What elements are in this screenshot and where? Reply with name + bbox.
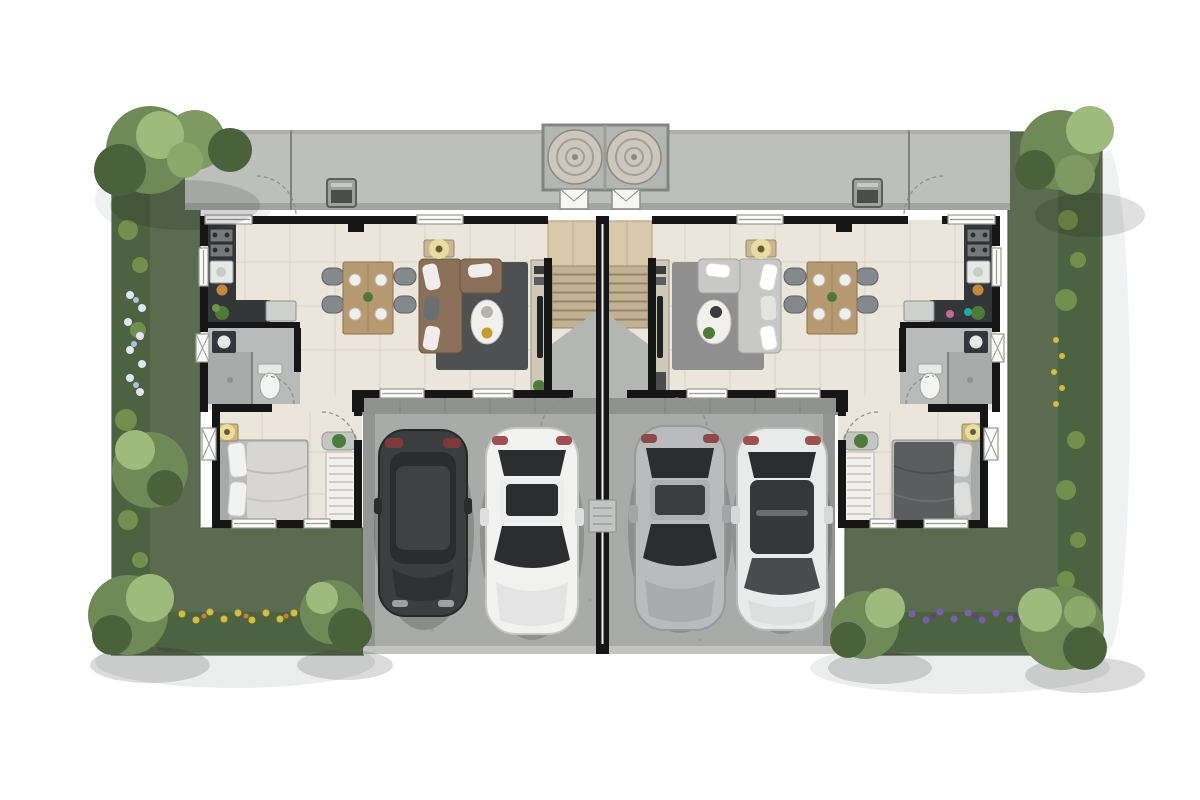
- window: [948, 215, 995, 224]
- bedroom-plant-left: [332, 434, 346, 448]
- window: [417, 215, 463, 224]
- water-tank-niche: [543, 125, 668, 190]
- staircase-left: [544, 221, 598, 398]
- dining-chair: [394, 268, 416, 285]
- dining-chair: [784, 296, 806, 313]
- water-tank-left: [548, 130, 602, 184]
- table-plant-left: [363, 292, 373, 302]
- fridge-left: [266, 301, 296, 321]
- dining-chair: [322, 296, 344, 313]
- window: [992, 248, 1001, 286]
- window: [304, 519, 330, 528]
- fruit-bowl-right: [973, 285, 984, 296]
- coffee-table-right: [697, 300, 731, 344]
- table-plant-right: [827, 292, 837, 302]
- wardrobe-right: [844, 432, 878, 522]
- window: [473, 389, 513, 398]
- bed-left: [216, 440, 308, 522]
- fruit-bowl-left: [217, 285, 228, 296]
- rear-step-mat-right: [612, 189, 640, 209]
- window: [380, 389, 424, 398]
- dining-chair: [856, 268, 878, 285]
- floor-plan-canvas: [0, 0, 1200, 800]
- window: [737, 215, 783, 224]
- rear-step-mat-left: [560, 189, 588, 209]
- window: [202, 428, 216, 460]
- bathroom-right: [899, 328, 992, 404]
- window: [199, 248, 208, 286]
- side-lamp-left: [424, 239, 454, 259]
- water-tank-right: [607, 130, 661, 184]
- car-sedan-white: [480, 428, 584, 640]
- wardrobe-left: [322, 432, 356, 522]
- glass-canopy: [750, 480, 814, 554]
- window: [687, 389, 727, 398]
- kitchen-plant-right: [971, 306, 985, 320]
- bush-bottom-right: [1018, 586, 1145, 693]
- bedroom-plant-right: [854, 434, 868, 448]
- car-sedan-pearl: [731, 428, 833, 634]
- toilet-right: [918, 364, 942, 399]
- window: [870, 519, 896, 528]
- window: [924, 519, 968, 528]
- car-sedan-silver: [628, 426, 732, 633]
- toilet-left: [258, 364, 282, 399]
- window: [776, 389, 820, 398]
- side-lamp-right: [746, 239, 776, 259]
- window: [991, 334, 1004, 362]
- staircase-right: [602, 221, 656, 398]
- dining-chair: [322, 268, 344, 285]
- bed-right: [892, 440, 984, 522]
- dining-chair: [856, 296, 878, 313]
- tree-top-left: [94, 106, 260, 230]
- window: [232, 519, 276, 528]
- tv-right: [657, 296, 663, 358]
- fridge-right: [904, 301, 934, 321]
- bathroom-left: [208, 328, 301, 404]
- car-suv-dark: [374, 430, 474, 630]
- ac-unit-right: [853, 179, 882, 207]
- window: [984, 428, 998, 460]
- dining-chair: [784, 268, 806, 285]
- dining-chair: [394, 296, 416, 313]
- floor-plan-page: [0, 0, 1200, 800]
- ac-unit-left: [327, 179, 356, 207]
- coffee-table-left: [471, 300, 503, 344]
- tv-left: [537, 296, 543, 358]
- window: [196, 334, 209, 362]
